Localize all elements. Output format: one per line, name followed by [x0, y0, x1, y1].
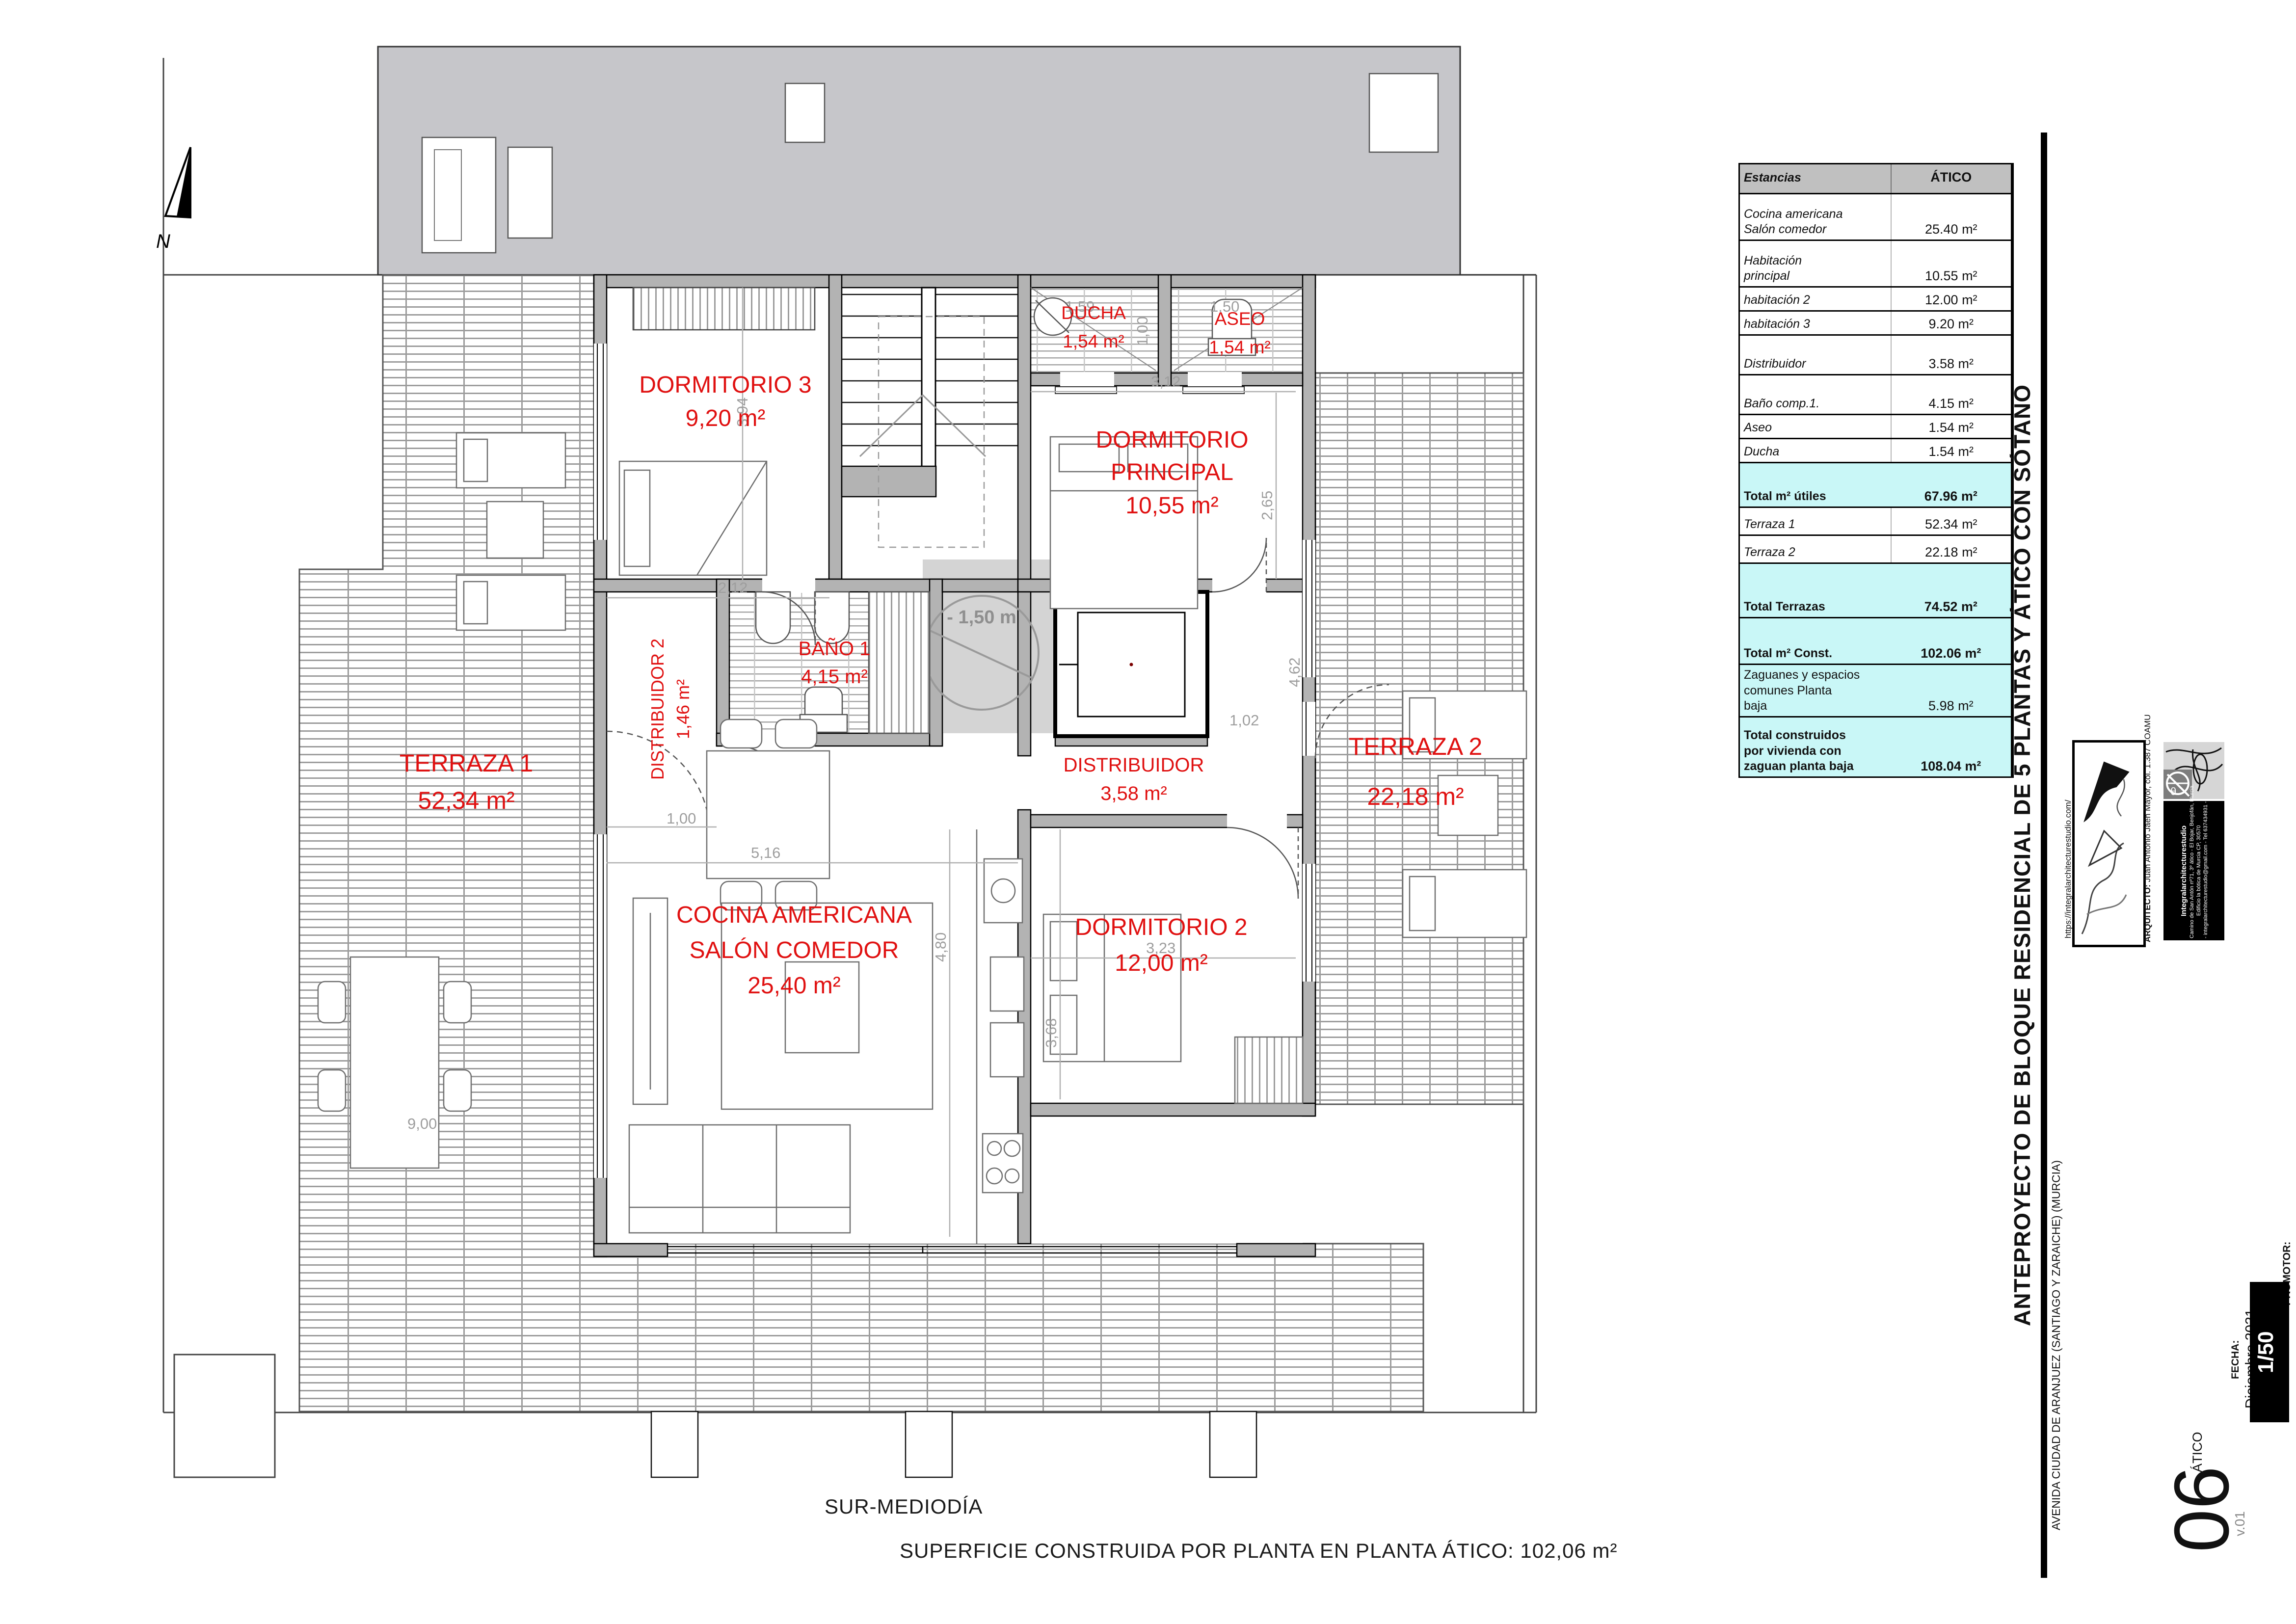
table-row-zaguanes: Zaguanes y espacioscomunes Plantabaja 5.…: [1740, 664, 2011, 716]
svg-text:1,54 m²: 1,54 m²: [1063, 331, 1124, 351]
table-row-total-utiles: Total m² útiles 67.96 m²: [1740, 462, 2011, 506]
svg-text:θ: θ: [2170, 785, 2176, 798]
studio-name: Integralarchitecturestudio: [2180, 803, 2188, 938]
table-row: Habitaciónprincipal 10.55 m²: [1740, 240, 2011, 286]
svg-text:SALÓN COMEDOR: SALÓN COMEDOR: [690, 937, 899, 963]
turning-circle-label: - 1,50 m: [947, 607, 1016, 628]
table-row-total-const: Total m² Const. 102.06 m²: [1740, 617, 2011, 664]
svg-text:22,18 m²: 22,18 m²: [1367, 783, 1464, 810]
table-row: Terraza 2 22.18 m²: [1740, 534, 2011, 562]
label-dormitorio3: DORMITORIO 3: [639, 372, 811, 398]
table-row-total-terrazas: Total Terrazas 74.52 m²: [1740, 562, 2011, 617]
svg-text:3,12: 3,12: [1151, 373, 1180, 390]
svg-text:52,34 m²: 52,34 m²: [418, 787, 514, 814]
areas-table: Estancias ÁTICO Cocina americanaSalón co…: [1738, 163, 2014, 778]
svg-text:2,65: 2,65: [1258, 491, 1276, 520]
label-terraza2: TERRAZA 2: [1349, 733, 1482, 760]
svg-text:25,40 m²: 25,40 m²: [748, 973, 840, 999]
project-address: AVENIDA CIUDAD DE ARANJUEZ (SANTIAGO Y Z…: [2050, 133, 2064, 1530]
table-header-label: Estancias: [1740, 169, 1891, 188]
svg-text:12,00 m²: 12,00 m²: [1115, 950, 1207, 976]
sheet-number: 06: [2158, 1443, 2241, 1575]
elevator: [1055, 592, 1207, 736]
label-terraza1: TERRAZA 1: [400, 749, 533, 777]
studio-card: Integralarchitecturestudio Camino de San…: [2163, 801, 2224, 940]
drawing-sheet: N: [0, 0, 2296, 1624]
svg-text:9,20 m²: 9,20 m²: [686, 405, 766, 431]
table-row: Terraza 1 52.34 m²: [1740, 506, 2011, 534]
studio-address2: Edificio la bótica de Murcia CP, 30570: [2196, 803, 2202, 938]
north-label: N: [156, 231, 170, 252]
label-distribuidor2: DISTRIBUIDOR 2: [647, 639, 667, 780]
label-distribuidor: DISTRIBUIDOR: [1064, 754, 1204, 776]
table-row: habitación 3 9.20 m²: [1740, 310, 2011, 334]
studio-address1: Camino de San Antón nº71, 3º ático - El …: [2189, 803, 2195, 938]
svg-text:1,02: 1,02: [1229, 712, 1259, 729]
table-row: Baño comp.1. 4.15 m²: [1740, 374, 2011, 414]
orientation-label: SUR-MEDIODÍA: [825, 1495, 983, 1518]
svg-text:5,16: 5,16: [751, 844, 780, 861]
svg-text:1,00: 1,00: [1134, 317, 1151, 346]
table-row: Ducha 1.54 m²: [1740, 438, 2011, 462]
north-arrow-icon: N: [156, 147, 190, 252]
coamu-logo-icon: θ: [2163, 770, 2192, 799]
pillars: [651, 1411, 1256, 1477]
table-header-value: ÁTICO: [1891, 164, 2011, 193]
label-bano1: BAÑO 1: [799, 638, 871, 660]
label-ducha: DUCHA: [1061, 303, 1126, 323]
svg-text:PRINCIPAL: PRINCIPAL: [1111, 459, 1233, 485]
label-dormitorio2: DORMITORIO 2: [1075, 914, 1247, 940]
built-area-note: SUPERFICIE CONSTRUIDA POR PLANTA EN PLAN…: [900, 1539, 1617, 1563]
svg-text:3,58 m²: 3,58 m²: [1100, 783, 1167, 804]
table-row: Aseo 1.54 m²: [1740, 414, 2011, 438]
fecha-label: FECHA:: [2230, 1256, 2243, 1379]
svg-text:1,54 m²: 1,54 m²: [1209, 337, 1270, 357]
svg-text:10,55 m²: 10,55 m²: [1125, 493, 1218, 519]
svg-text:4,62: 4,62: [1286, 658, 1303, 687]
project-title: ANTEPROYECTO DE BLOQUE RESIDENCIAL DE 5 …: [2009, 133, 2039, 1578]
svg-text:9,00: 9,00: [407, 1115, 437, 1132]
svg-text:4,80: 4,80: [932, 932, 949, 962]
label-dormitorio-principal: DORMITORIO: [1095, 427, 1248, 453]
svg-text:1,46 m²: 1,46 m²: [673, 679, 693, 739]
table-row: Distribuidor 3.58 m²: [1740, 334, 2011, 374]
table-row: habitación 2 12.00 m²: [1740, 286, 2011, 310]
svg-text:4,15 m²: 4,15 m²: [801, 666, 868, 688]
adjacent-building: [378, 47, 1536, 275]
table-row: Cocina americanaSalón comedor 25.40 m²: [1740, 193, 2011, 240]
table-row-total-vivienda: Total construidospor vivienda conzaguan …: [1740, 716, 2011, 776]
architect-line: ARQUITECTO: Juan Antonio Jaén Mayor, col…: [2143, 731, 2158, 942]
studio-contact: - integralarchitecturestudio@gmail.com -…: [2203, 803, 2209, 938]
svg-text:1,00: 1,00: [667, 810, 696, 827]
architect-sketch: [2072, 740, 2146, 947]
label-cocina: COCINA AMERICANA: [676, 902, 912, 928]
label-aseo: ASEO: [1215, 309, 1265, 329]
table-header: Estancias ÁTICO: [1740, 164, 2011, 193]
scale-value: 1/50: [2254, 1282, 2285, 1422]
svg-text:2,12: 2,12: [718, 579, 748, 596]
svg-text:3,68: 3,68: [1042, 1018, 1060, 1048]
titleblock-divider: [2041, 133, 2047, 1578]
